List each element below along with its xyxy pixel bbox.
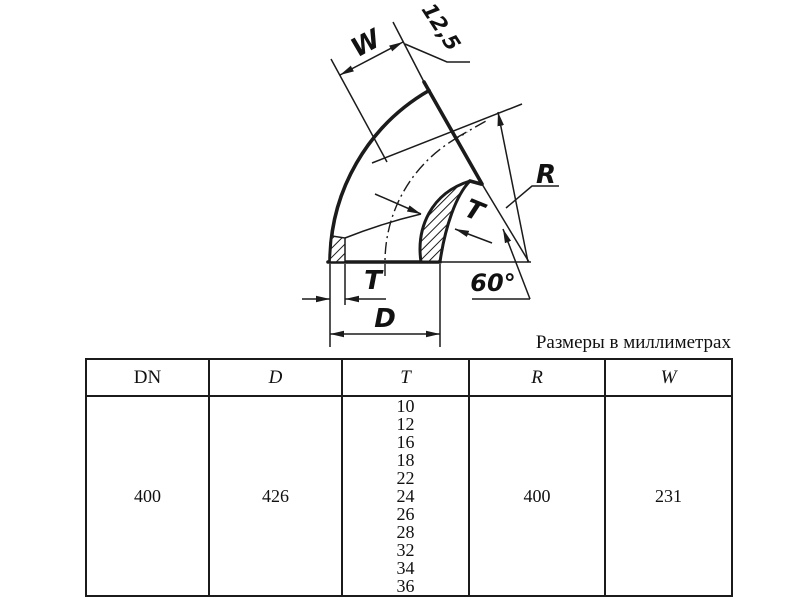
w-label: W [346, 23, 387, 64]
elbow-inclined-face [424, 82, 482, 184]
t-mid-arrow-right [455, 229, 492, 243]
cell-r: 400 [469, 396, 605, 596]
column-header-dn: DN [86, 359, 209, 396]
cell-t-values: 10 12 16 18 22 24 26 28 32 34 36 [342, 396, 469, 596]
column-header-t: T [342, 359, 469, 396]
column-header-r: R [469, 359, 605, 396]
radius-label: R [536, 160, 556, 190]
elbow-technical-drawing: R W 12,5 T 60° T D [0, 0, 800, 360]
cell-d: 426 [209, 396, 342, 596]
inclined-face-extension-top [393, 22, 424, 82]
radius-tangent-line [372, 104, 522, 163]
cell-dn: 400 [86, 396, 209, 596]
elbow-outer-arc [330, 91, 429, 263]
cell-w: 231 [605, 396, 732, 596]
page: R W 12,5 T 60° T D Размеры в миллиметрах [0, 0, 800, 600]
column-header-d: D [209, 359, 342, 396]
bore-inner-edge-curve [345, 214, 421, 238]
column-header-w: W [605, 359, 732, 396]
t-mid-label: T [460, 194, 490, 229]
t-mid-arrow-left [375, 194, 421, 214]
roughness-value: 12,5 [417, 0, 465, 55]
t-bottom-label: T [364, 266, 384, 296]
angle-label: 60° [470, 269, 515, 297]
dimensions-table: DN D T R W 400 426 10 12 16 18 22 24 26 … [85, 358, 733, 597]
table-data-row: 400 426 10 12 16 18 22 24 26 28 32 34 36… [86, 396, 732, 596]
units-caption: Размеры в миллиметрах [0, 332, 731, 354]
table-header-row: DN D T R W [86, 359, 732, 396]
d-label: D [374, 304, 396, 334]
roughness-checkmark [405, 44, 470, 62]
bottom-wall-section-hatched [330, 236, 345, 262]
w-extension-line [331, 59, 387, 162]
radius-dimension-line [498, 112, 528, 262]
inclined-face-extension-bottom [482, 184, 529, 262]
